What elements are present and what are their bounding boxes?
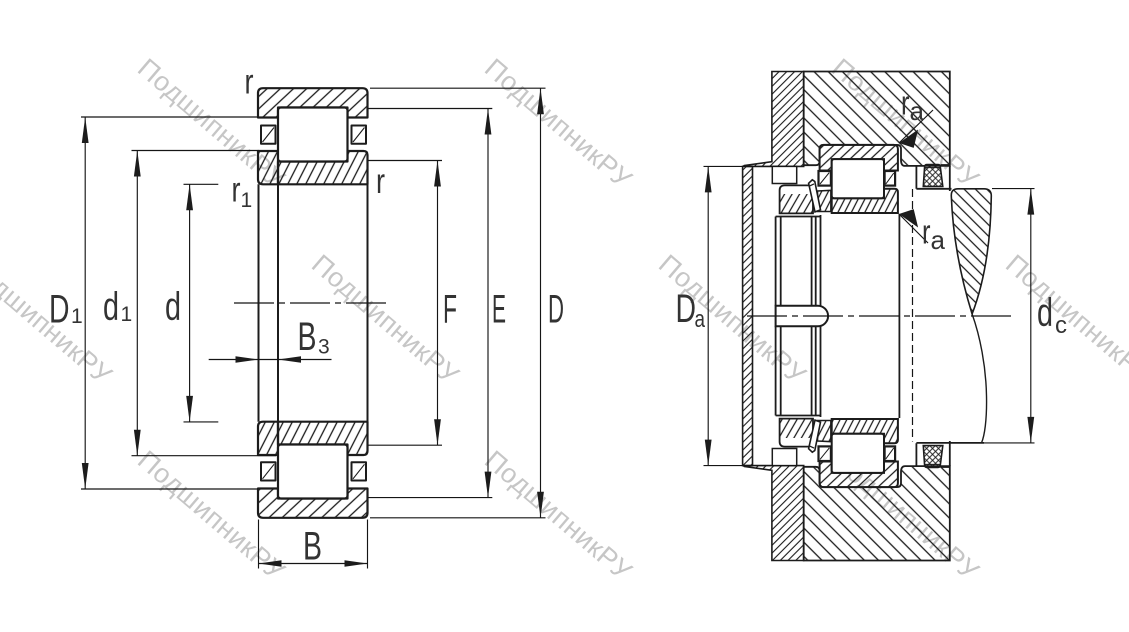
svg-text:ПодшипникРУ: ПодшипникРУ bbox=[479, 53, 638, 195]
svg-text:1: 1 bbox=[121, 303, 133, 326]
svg-text:ПодшипникРУ: ПодшипникРУ bbox=[306, 249, 465, 391]
svg-text:d: d bbox=[165, 285, 181, 329]
svg-text:D: D bbox=[49, 288, 70, 332]
svg-text:D: D bbox=[676, 287, 697, 331]
svg-text:B: B bbox=[298, 315, 317, 359]
svg-text:D: D bbox=[548, 288, 564, 332]
svg-text:3: 3 bbox=[318, 336, 330, 359]
svg-text:1: 1 bbox=[71, 305, 83, 328]
svg-text:1: 1 bbox=[241, 189, 253, 212]
svg-text:a: a bbox=[910, 96, 925, 126]
svg-text:r: r bbox=[376, 162, 385, 201]
svg-text:ПодшипникРУ: ПодшипникРУ bbox=[479, 445, 638, 587]
svg-text:d: d bbox=[1037, 291, 1053, 335]
svg-text:c: c bbox=[1055, 312, 1067, 339]
svg-text:E: E bbox=[492, 288, 506, 332]
svg-text:r: r bbox=[245, 63, 254, 102]
svg-text:r: r bbox=[901, 85, 910, 123]
svg-text:r: r bbox=[922, 214, 931, 252]
svg-text:a: a bbox=[931, 225, 946, 255]
svg-text:B: B bbox=[303, 525, 322, 569]
svg-text:r: r bbox=[232, 171, 241, 210]
svg-text:a: a bbox=[695, 306, 706, 333]
svg-text:d: d bbox=[103, 285, 119, 329]
svg-text:F: F bbox=[443, 288, 457, 332]
